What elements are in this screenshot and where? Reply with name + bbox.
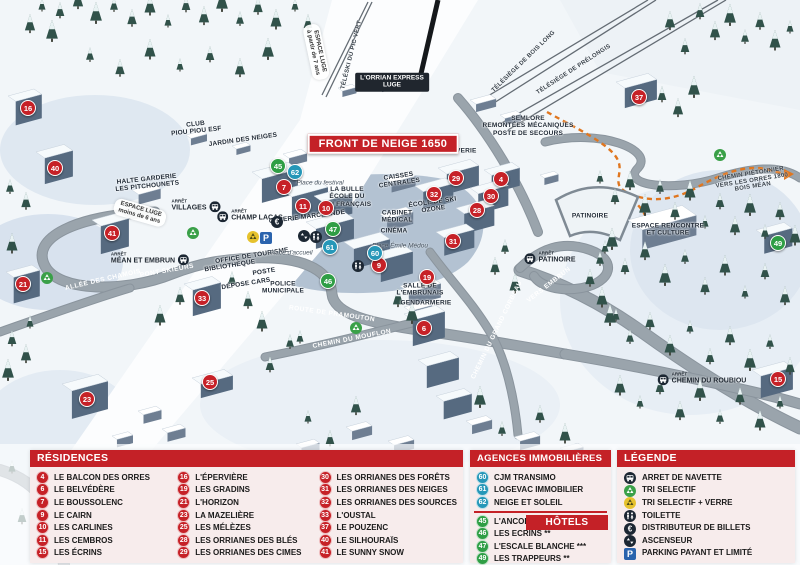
map-label-place-du-festival: Place du festival	[296, 179, 343, 186]
map-label-cabinet: CABINETMÉDICAL	[381, 210, 412, 225]
legend-item-tri-selectif: TRI SELECTIF	[617, 484, 795, 497]
item-label: LES ORRIANES DES FORÊTS	[337, 473, 450, 482]
svg-text:€: €	[275, 218, 280, 227]
item-label: L'ESCALE BLANCHE ***	[494, 542, 586, 551]
map-marker-11: 11	[295, 198, 311, 214]
map-label-l-orrian-express: L'ORRIAN EXPRESSLUGE	[355, 73, 429, 92]
map-marker-40: 40	[47, 160, 63, 176]
item-number: 31	[319, 483, 332, 496]
bus-stop-name: PATINOIRE	[538, 256, 575, 263]
residence-item-l-oustal: 33L'OUSTAL	[313, 509, 463, 522]
item-label: L'HORIZON	[195, 498, 239, 507]
front-de-neige-banner: FRONT DE NEIGE 1650	[308, 134, 459, 154]
bus-stop-name: VILLAGES	[171, 204, 206, 211]
agences-items: 60CJM TRANSIMO61LOGEVAC IMMOBILIER62NEIG…	[470, 467, 611, 509]
map-label-gendarmerie: GENDARMERIE	[401, 299, 452, 306]
bus-icon	[624, 471, 636, 483]
bus-icon	[658, 373, 669, 384]
item-number: 9	[36, 509, 49, 522]
euro-icon: €	[271, 216, 283, 228]
svg-text:€: €	[628, 524, 633, 533]
legend-item-toilette: TOILETTE	[617, 509, 795, 522]
item-number: 47	[476, 540, 489, 553]
item-label: LES GRADINS	[195, 485, 250, 494]
toilet-icon	[624, 509, 636, 521]
map-marker-15: 15	[770, 371, 786, 387]
map-marker-19: 19	[419, 269, 435, 285]
map-marker-61: 61	[322, 239, 338, 255]
item-label: LE POUZENC	[337, 523, 389, 532]
map-marker-41: 41	[104, 225, 120, 241]
item-label: LES CARLINES	[54, 523, 113, 532]
map-marker-29: 29	[448, 170, 464, 186]
map-marker-10: 10	[318, 200, 334, 216]
residence-item-les-orrianes-des-cimes: 29LES ORRIANES DES CIMES	[171, 547, 312, 560]
item-number: 19	[177, 483, 190, 496]
item-label: LES ORRIANES DES CIMES	[195, 548, 301, 557]
item-number: 40	[319, 534, 332, 547]
bus-stop-chemin-du-roubiou: ARRÊTCHEMIN DU ROUBIOU	[658, 372, 747, 384]
map-marker-37: 37	[631, 89, 647, 105]
item-number: 10	[36, 521, 49, 534]
item-number: 33	[319, 509, 332, 522]
residences-column-3: 30LES ORRIANES DES FORÊTS31LES ORRIANES …	[313, 467, 463, 559]
bus-stop-text: ARRÊTCHEMIN DU ROUBIOU	[672, 372, 747, 384]
residence-item-l-pervi-re: 16L'ÉPERVIÈRE	[171, 471, 312, 484]
bus-icon	[178, 253, 189, 264]
map-marker-23: 23	[79, 391, 95, 407]
legend-label: TRI SELECTIF + VERRE	[642, 498, 732, 507]
item-label: LE CAIRN	[54, 511, 92, 520]
legende-items: ARRET DE NAVETTE TRI SELECTIF TRI SELECT…	[617, 467, 795, 559]
bus-stop-patinoire: ARRÊTPATINOIRE	[524, 251, 575, 263]
panel-agences-title: AGENCES IMMOBILIÈRES	[470, 450, 611, 467]
item-label: CJM TRANSIMO	[494, 473, 556, 482]
svg-text:P: P	[263, 233, 269, 243]
item-label: LE BELVÉDÈRE	[54, 485, 115, 494]
elevator-icon	[624, 534, 636, 546]
map-label-salle-de: SALLE DEL'EMBRUNAIS	[396, 283, 443, 298]
bus-stop-m-an-et-embrun: ARRÊTMÉAN ET EMBRUN	[111, 252, 189, 264]
map-marker-49: 49	[770, 235, 786, 251]
residence-item-les-orrianes-des-neiges: 31LES ORRIANES DES NEIGES	[313, 484, 463, 497]
item-number: 62	[476, 496, 489, 509]
toilet-icon	[310, 231, 322, 243]
elevator-icon	[298, 230, 310, 242]
item-number: 61	[476, 483, 489, 496]
residence-item-les-orrianes-des-sources: 32LES ORRIANES DES SOURCES	[313, 496, 463, 509]
panel-legende-title: LÉGENDE	[617, 450, 795, 467]
hotel-item-les-trappeurs: 49LES TRAPPEURS **	[470, 553, 611, 565]
euro-icon: €	[624, 522, 636, 534]
residence-item-les-orrianes-des-bl-s: 28LES ORRIANES DES BLÉS	[171, 534, 312, 547]
bus-icon	[524, 252, 535, 263]
resort-map: FRONT DE NEIGE 1650L'ORRIAN EXPRESSLUGEE…	[0, 0, 800, 565]
item-label: LES MÉLÈZES	[195, 523, 251, 532]
item-number: 16	[177, 471, 190, 484]
hotel-item-l-escale-blanche: 47L'ESCALE BLANCHE ***	[470, 540, 611, 553]
residence-item-le-sunny-snow: 41LE SUNNY SNOW	[313, 547, 463, 560]
recycle-green-icon	[624, 484, 636, 496]
panel-residences-title: RÉSIDENCES	[30, 450, 463, 467]
bus-stop-text: ARRÊTVILLAGES	[171, 199, 206, 211]
parking-icon: P	[260, 232, 272, 244]
residence-item-les-carlines: 10LES CARLINES	[30, 521, 171, 534]
residence-item-le-balcon-des-orres: 4LE BALCON DES ORRES	[30, 471, 171, 484]
bus-icon	[217, 210, 228, 221]
hotels-divider	[474, 511, 607, 513]
item-label: NEIGE ET SOLEIL	[494, 498, 562, 507]
map-marker-21: 21	[15, 276, 31, 292]
toilet-icon	[352, 260, 364, 272]
recycle-green-icon	[187, 227, 199, 239]
item-number: 4	[36, 471, 49, 484]
legend-label: DISTRIBUTEUR DE BILLETS	[642, 523, 750, 532]
item-label: LA MAZELIÈRE	[195, 511, 254, 520]
item-label: LES ORRIANES DES BLÉS	[195, 536, 297, 545]
item-number: 37	[319, 521, 332, 534]
residences-columns: 4LE BALCON DES ORRES6LE BELVÉDÈRE7LE BOU…	[30, 467, 463, 559]
map-marker-31: 31	[445, 233, 461, 249]
map-label-patinoire: PATINOIRE	[572, 212, 608, 219]
legend-item-arret-de-navette: ARRET DE NAVETTE	[617, 471, 795, 484]
hotels-items: HÔTELS 45L'ANCOLIE **46LES ECRINS **47L'…	[470, 515, 611, 565]
legend-label: TOILETTE	[642, 511, 681, 520]
legend-item-distributeur-de-billets: €DISTRIBUTEUR DE BILLETS	[617, 521, 795, 534]
recycle-green-icon	[350, 322, 362, 334]
item-label: LES TRAPPEURS **	[494, 554, 570, 563]
parking-icon: P	[624, 547, 636, 559]
map-label-place-d-accueil: Place d'accueil	[269, 249, 312, 256]
item-number: 7	[36, 496, 49, 509]
item-number: 32	[319, 496, 332, 509]
residence-item-le-boussolenc: 7LE BOUSSOLENC	[30, 496, 171, 509]
item-number: 15	[36, 546, 49, 559]
item-label: LE SILHOURAÏS	[337, 536, 399, 545]
item-label: L'ÉPERVIÈRE	[195, 473, 247, 482]
residence-item-le-belv-d-re: 6LE BELVÉDÈRE	[30, 484, 171, 497]
item-number: 23	[177, 509, 190, 522]
residence-item-les-crins: 15LES ÉCRINS	[30, 547, 171, 560]
map-label-espace-rencontre: ESPACE RENCONTREET CULTURE	[632, 223, 704, 238]
panel-agences: AGENCES IMMOBILIÈRES 60CJM TRANSIMO61LOG…	[470, 450, 611, 563]
residence-item-le-cairn: 9LE CAIRN	[30, 509, 171, 522]
item-label: L'OUSTAL	[337, 511, 376, 520]
legend-item-parking-payant-et-limit: PPARKING PAYANT ET LIMITÉ	[617, 547, 795, 560]
item-number: 41	[319, 546, 332, 559]
item-number: 60	[476, 471, 489, 484]
item-label: LES ORRIANES DES SOURCES	[337, 498, 457, 507]
legend-label: PARKING PAYANT ET LIMITÉ	[642, 548, 752, 557]
residence-item-les-gradins: 19LES GRADINS	[171, 484, 312, 497]
recycle-green-icon	[714, 149, 726, 161]
residences-column-1: 4LE BALCON DES ORRES6LE BELVÉDÈRE7LE BOU…	[30, 467, 171, 559]
panel-legende: LÉGENDE ARRET DE NAVETTE TRI SELECTIF TR…	[617, 450, 795, 563]
item-number: 30	[319, 471, 332, 484]
residence-item-les-orrianes-des-for-ts: 30LES ORRIANES DES FORÊTS	[313, 471, 463, 484]
item-label: LES ECRINS **	[494, 529, 550, 538]
residence-item-le-silhoura-s: 40LE SILHOURAÏS	[313, 534, 463, 547]
svg-text:P: P	[627, 549, 633, 559]
legend-label: ARRET DE NAVETTE	[642, 473, 722, 482]
item-number: 6	[36, 483, 49, 496]
map-marker-16: 16	[20, 100, 36, 116]
item-number: 21	[177, 496, 190, 509]
item-label: LOGEVAC IMMOBILIER	[494, 485, 583, 494]
bus-stop-name: CHEMIN DU ROUBIOU	[672, 377, 747, 384]
map-label-cin-ma: CINÉMA	[381, 227, 408, 234]
map-marker-62: 62	[287, 164, 303, 180]
residence-item-l-horizon: 21L'HORIZON	[171, 496, 312, 509]
map-label-semlore: SEMLOREREMONTÉES MÉCANIQUESPOSTE DE SECO…	[482, 115, 573, 137]
legend-label: TRI SELECTIF	[642, 485, 696, 494]
map-marker-46: 46	[320, 273, 336, 289]
legend-item-ascenseur: ASCENSEUR	[617, 534, 795, 547]
item-label: LE BOUSSOLENC	[54, 498, 123, 507]
map-marker-47: 47	[325, 221, 341, 237]
bus-stop-text: ARRÊTPATINOIRE	[538, 251, 575, 263]
map-marker-25: 25	[202, 374, 218, 390]
map-marker-32: 32	[426, 186, 442, 202]
map-marker-30: 30	[483, 188, 499, 204]
map-marker-7: 7	[276, 179, 292, 195]
item-number: 29	[177, 546, 190, 559]
hotels-title: HÔTELS	[526, 515, 608, 530]
item-label: LES ÉCRINS	[54, 548, 102, 557]
recycle-green-icon	[41, 272, 53, 284]
panel-residences: RÉSIDENCES 4LE BALCON DES ORRES6LE BELVÉ…	[30, 450, 463, 563]
map-marker-45: 45	[270, 158, 286, 174]
map-marker-33: 33	[194, 290, 210, 306]
item-number: 45	[476, 515, 489, 528]
bus-stop-villages: ARRÊTVILLAGES	[171, 199, 220, 211]
legend-label: ASCENSEUR	[642, 536, 692, 545]
item-label: LES ORRIANES DES NEIGES	[337, 485, 448, 494]
item-number: 49	[476, 552, 489, 565]
item-number: 25	[177, 521, 190, 534]
map-marker-28: 28	[469, 202, 485, 218]
map-marker-60: 60	[367, 245, 383, 261]
item-label: LE BALCON DES ORRES	[54, 473, 150, 482]
bus-stop-name: MÉAN ET EMBRUN	[111, 257, 175, 264]
map-label-police: POLICEMUNICIPALE	[262, 281, 304, 296]
agency-item-logevac-immobilier: 61LOGEVAC IMMOBILIER	[470, 484, 611, 497]
map-marker-6: 6	[416, 320, 432, 336]
bus-stop-text: ARRÊTMÉAN ET EMBRUN	[111, 252, 175, 264]
item-label: LES CEMBROS	[54, 536, 113, 545]
residence-item-la-mazeli-re: 23LA MAZELIÈRE	[171, 509, 312, 522]
item-number: 11	[36, 534, 49, 547]
residences-column-2: 16L'ÉPERVIÈRE19LES GRADINS21L'HORIZON23L…	[171, 467, 312, 559]
item-number: 46	[476, 527, 489, 540]
legend-item-tri-selectif-verre: TRI SELECTIF + VERRE	[617, 496, 795, 509]
item-number: 28	[177, 534, 190, 547]
agency-item-cjm-transimo: 60CJM TRANSIMO	[470, 471, 611, 484]
residence-item-les-cembros: 11LES CEMBROS	[30, 534, 171, 547]
residence-item-le-pouzenc: 37LE POUZENC	[313, 521, 463, 534]
item-label: LE SUNNY SNOW	[337, 548, 404, 557]
map-marker-4: 4	[493, 171, 509, 187]
agency-item-neige-et-soleil: 62NEIGE ET SOLEIL	[470, 496, 611, 509]
residence-item-les-m-l-zes: 25LES MÉLÈZES	[171, 521, 312, 534]
recycle-yellow-icon	[624, 496, 636, 508]
recycle-yellow-icon	[247, 231, 259, 243]
